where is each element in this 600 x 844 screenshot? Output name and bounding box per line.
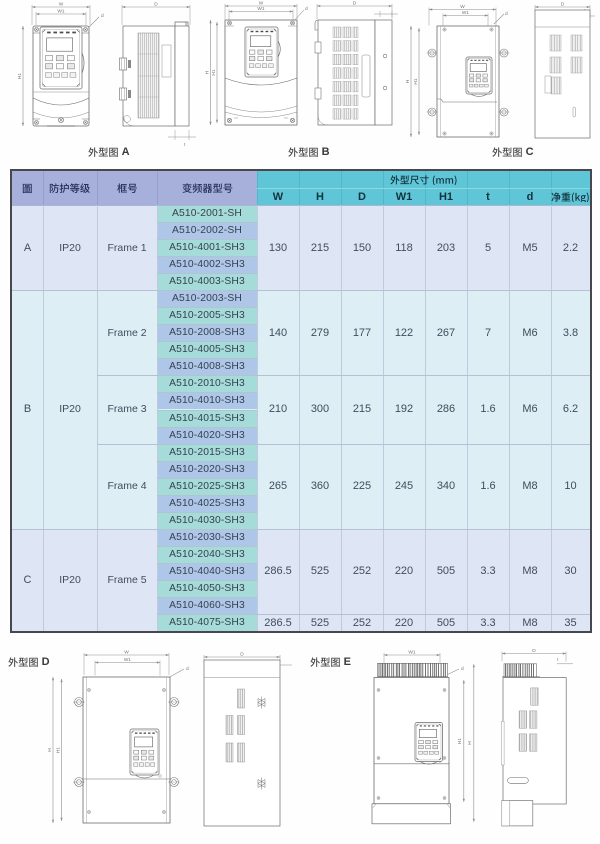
svg-text:D: D xyxy=(532,648,536,654)
svg-text:D: D xyxy=(353,1,357,7)
svg-text:d: d xyxy=(461,666,464,672)
svg-text:D: D xyxy=(154,2,158,8)
svg-text:H1: H1 xyxy=(413,78,419,84)
svg-text:W: W xyxy=(59,2,64,8)
svg-text:W1: W1 xyxy=(57,9,65,15)
svg-text:W: W xyxy=(460,4,465,10)
svg-text:H1: H1 xyxy=(17,73,23,79)
svg-text:D: D xyxy=(240,652,244,658)
svg-text:W: W xyxy=(124,650,129,656)
svg-text:H1: H1 xyxy=(457,738,463,744)
svg-text:W: W xyxy=(259,1,264,7)
svg-text:d: d xyxy=(505,11,508,17)
svg-text:W1: W1 xyxy=(462,10,470,16)
svg-text:D: D xyxy=(561,2,565,8)
svg-text:H1: H1 xyxy=(211,69,217,75)
svg-text:t: t xyxy=(557,657,559,662)
svg-text:H: H xyxy=(405,79,411,83)
svg-text:W1: W1 xyxy=(408,650,416,656)
svg-text:t: t xyxy=(184,142,186,147)
svg-text:H1: H1 xyxy=(56,747,62,753)
svg-text:d: d xyxy=(186,666,189,672)
svg-text:H: H xyxy=(467,741,473,745)
svg-text:d: d xyxy=(305,6,308,12)
svg-text:W1: W1 xyxy=(124,657,132,663)
svg-text:d: d xyxy=(101,13,104,19)
svg-text:H: H xyxy=(205,70,211,74)
svg-text:H: H xyxy=(47,748,53,752)
svg-text:W1: W1 xyxy=(257,6,265,12)
